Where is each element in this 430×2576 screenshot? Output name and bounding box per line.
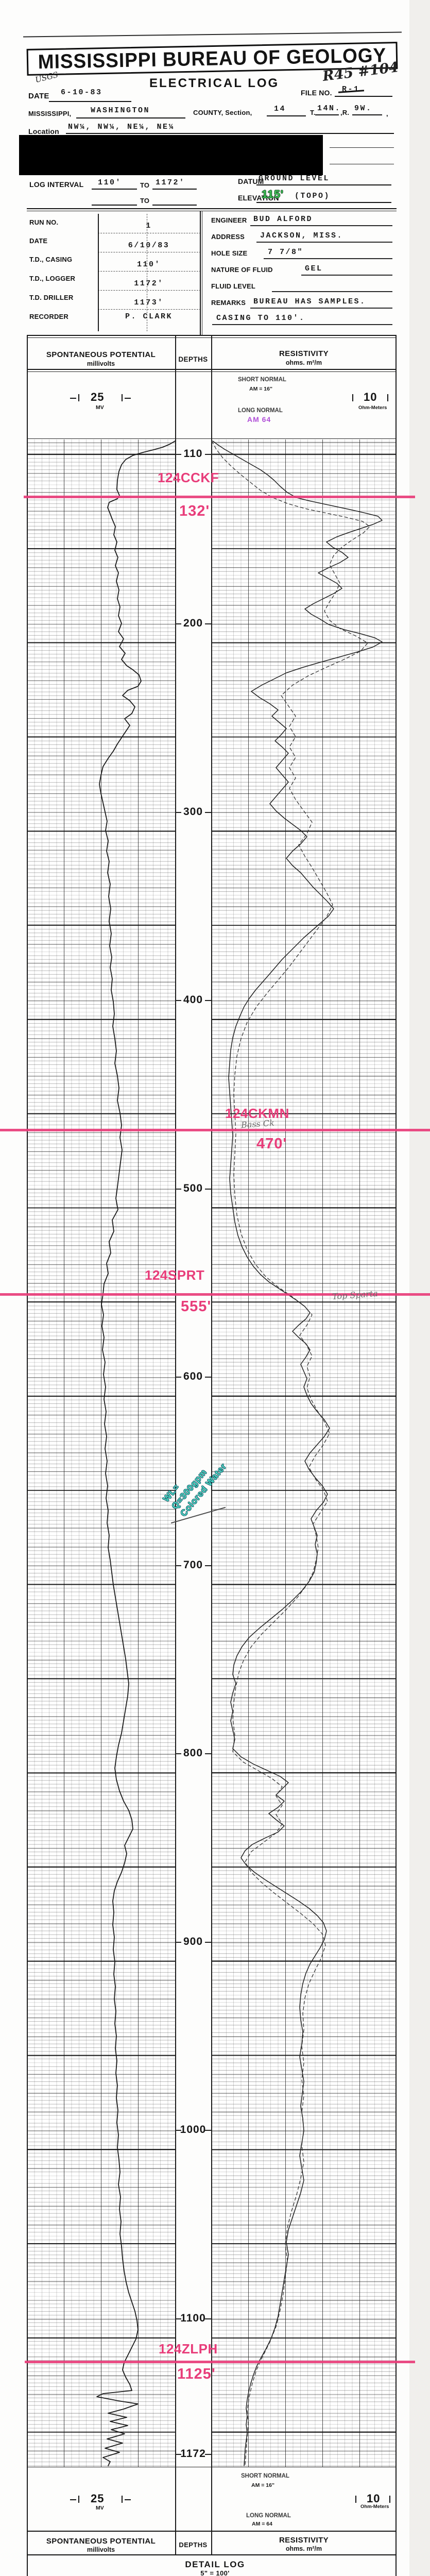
- county-value: WASHINGTON: [91, 106, 150, 115]
- long-normal-am-top: AM 64: [247, 415, 271, 423]
- detail-log-title: DETAIL LOG: [154, 2560, 276, 2570]
- well-info-underline: [250, 308, 392, 309]
- sp-scale-unit: MV: [96, 404, 104, 411]
- depths-column-title: DEPTHS: [175, 355, 211, 363]
- run-table-label: T.D., CASING: [29, 256, 72, 263]
- run-table-mid-divider: [147, 214, 147, 331]
- short-normal-label-bottom: SHORT NORMAL: [241, 2473, 289, 2479]
- sp-scale-value: 25: [91, 391, 104, 404]
- log-interval-to: 1172': [156, 178, 185, 187]
- res-scale-left-tick: [352, 394, 353, 401]
- location-value: NW¼, NW¼, NE¼, NE¼: [68, 123, 175, 131]
- res-footer-subtitle: ohms. m²/m: [237, 2545, 371, 2552]
- well-info-underline: [272, 291, 392, 292]
- redacted-field-rule-1: [330, 147, 394, 148]
- range-value: 9W.: [354, 104, 372, 113]
- res-scale-bottom-right-tick: [389, 2496, 390, 2503]
- res-scale-bottom-left-tick: [355, 2496, 356, 2503]
- run-table-value: 110': [99, 260, 199, 269]
- sp-scale-value-bottom: 25: [91, 2492, 104, 2505]
- log-interval-to-word: TO: [140, 181, 149, 189]
- res-column-title: RESISTIVITY: [237, 349, 371, 358]
- sp-scale-right-dash: [125, 398, 131, 399]
- well-info-label: ENGINEER: [211, 216, 247, 224]
- well-info-label: REMARKS: [211, 299, 246, 307]
- line-end-comma: ,: [386, 110, 388, 117]
- well-info-value: CASING TO 110'.: [216, 314, 305, 323]
- form-vertical-divider-a: [200, 211, 201, 335]
- depths-footer-title: DEPTHS: [175, 2541, 211, 2549]
- section-value: 14: [274, 105, 286, 113]
- run-table-left-edge: [98, 214, 99, 331]
- long-normal-label-bottom: LONG NORMAL: [246, 2513, 291, 2519]
- well-info-label: HOLE SIZE: [211, 249, 247, 257]
- log-interval-label: LOG INTERVAL: [29, 180, 83, 189]
- redaction-bar: [19, 135, 323, 175]
- footer-band-top-rule: [27, 2531, 397, 2532]
- res-scale-unit: Ohm-Meters: [358, 405, 387, 411]
- res-scale-unit-bottom: Ohm-Meters: [360, 2504, 389, 2510]
- range-label: ,R.: [340, 109, 349, 116]
- run-table-row-separator: [98, 233, 201, 233]
- log-type-title: ELECTRICAL LOG: [149, 76, 279, 91]
- section-divider-top-b: [27, 211, 397, 211]
- res-column-subtitle: ohms. m²/m: [237, 359, 371, 366]
- sp-scale-left-dash: [70, 398, 76, 399]
- well-info-value: GEL: [305, 264, 323, 273]
- run-table-label: RUN NO.: [29, 218, 58, 226]
- well-info-underline: [212, 324, 392, 325]
- file-no-underline: [335, 96, 392, 97]
- well-info-label: ADDRESS: [211, 233, 245, 241]
- well-info-value: JACKSON, MISS.: [260, 231, 343, 240]
- sp-scale-left-tick: [78, 394, 79, 401]
- date-label: DATE: [28, 92, 49, 100]
- redacted-field-rule-2: [330, 164, 394, 164]
- date-underline: [49, 101, 131, 102]
- sp-curve: [97, 441, 175, 2466]
- township-value: 14N.: [317, 104, 341, 113]
- scanned-electric-log-sheet: MISSISSIPPI BUREAU OF GEOLOGY USGS ELECT…: [0, 0, 430, 2576]
- form-vertical-divider-b: [202, 211, 202, 335]
- short-normal-am-bottom: AM = 16": [251, 2482, 274, 2488]
- township-underline: [315, 114, 339, 115]
- county-section-label: COUNTY, Section,: [193, 109, 252, 116]
- elevation-underline: [256, 202, 391, 203]
- section-underline: [267, 115, 306, 116]
- sp-scale-right-tick: [122, 394, 123, 401]
- long-normal-label-top: LONG NORMAL: [238, 408, 283, 414]
- state-label: MISSISSIPPI,: [28, 110, 71, 117]
- log-interval-from-underline: [92, 189, 137, 190]
- res-scale-value: 10: [364, 391, 377, 404]
- run-table-row-separator: [98, 309, 201, 310]
- well-info-underline: [301, 275, 392, 276]
- interval2-underline-b: [152, 205, 197, 206]
- res-scale-right-tick: [387, 394, 388, 401]
- sp-scale-unit-bottom: MV: [96, 2505, 104, 2511]
- run-table-row-separator: [98, 290, 201, 291]
- well-info-underline: [264, 258, 392, 259]
- elevation-note: (TOPO): [295, 192, 330, 200]
- run-table-label: T.D., LOGGER: [29, 275, 75, 282]
- run-table-label: RECORDER: [29, 313, 68, 320]
- log-interval-from: 110': [98, 178, 122, 187]
- sp-column-subtitle: millivolts: [34, 360, 168, 367]
- run-table-value: P. CLARK: [99, 312, 199, 321]
- range-underline: [352, 114, 382, 115]
- run-table-row-separator: [98, 252, 201, 252]
- run-table-value: 1172': [99, 279, 199, 288]
- well-info-value: BUREAU HAS SAMPLES.: [253, 297, 366, 306]
- location-underline: [66, 133, 394, 134]
- county-underline: [76, 117, 185, 118]
- short-normal-am-top: AM = 16": [249, 386, 272, 392]
- well-info-underline: [256, 242, 392, 243]
- long-normal-curve: [212, 441, 370, 2465]
- well-info-value: 7 7/8": [268, 248, 303, 257]
- run-table-label: T.D. DRILLER: [29, 294, 73, 301]
- to-word-2: TO: [140, 197, 149, 205]
- section-divider-top-a: [27, 208, 397, 209]
- short-normal-label-top: SHORT NORMAL: [238, 377, 286, 383]
- elevation-value-highlighted: 115': [262, 189, 284, 201]
- run-table-row-separator: [98, 271, 201, 272]
- long-normal-am-bottom: AM = 64: [252, 2521, 272, 2527]
- location-label: Location: [28, 127, 59, 135]
- date-value: 6-10-83: [61, 88, 102, 97]
- sp-scale-bottom-left-dash: [70, 2499, 76, 2500]
- well-info-label: NATURE OF FLUID: [211, 266, 273, 274]
- log-curves: [0, 439, 430, 2467]
- short-normal-curve: [213, 441, 382, 2466]
- well-info-underline: [250, 225, 392, 226]
- well-info-value: BUD ALFORD: [253, 215, 313, 224]
- sp-scale-bottom-right-dash: [125, 2499, 131, 2500]
- log-interval-to-underline: [152, 189, 197, 190]
- run-table-value: 1: [99, 222, 199, 230]
- well-info-label: FLUID LEVEL: [211, 282, 255, 290]
- scan-edge-line: [23, 32, 402, 38]
- run-table-label: DATE: [29, 237, 47, 245]
- file-no-label: FILE NO.: [301, 89, 332, 97]
- footer-band-bottom-rule: [27, 2554, 397, 2555]
- interval2-underline-a: [92, 205, 137, 206]
- sp-scale-bottom-right-tick: [122, 2496, 123, 2503]
- res-footer-title: RESISTIVITY: [237, 2536, 371, 2545]
- datum-underline: [256, 184, 391, 185]
- datum-value: GROUND LEVEL: [259, 174, 330, 183]
- township-label: T.: [310, 109, 316, 116]
- sp-footer-subtitle: millivolts: [34, 2546, 168, 2553]
- sp-scale-bottom-left-tick: [78, 2496, 79, 2503]
- run-table-value: 6/10/83: [99, 241, 199, 250]
- detail-log-scale: 5" = 100': [154, 2569, 276, 2576]
- sp-footer-title: SPONTANEOUS POTENTIAL: [34, 2537, 168, 2546]
- sp-column-title: SPONTANEOUS POTENTIAL: [34, 350, 168, 359]
- run-table-value: 1173': [99, 298, 199, 307]
